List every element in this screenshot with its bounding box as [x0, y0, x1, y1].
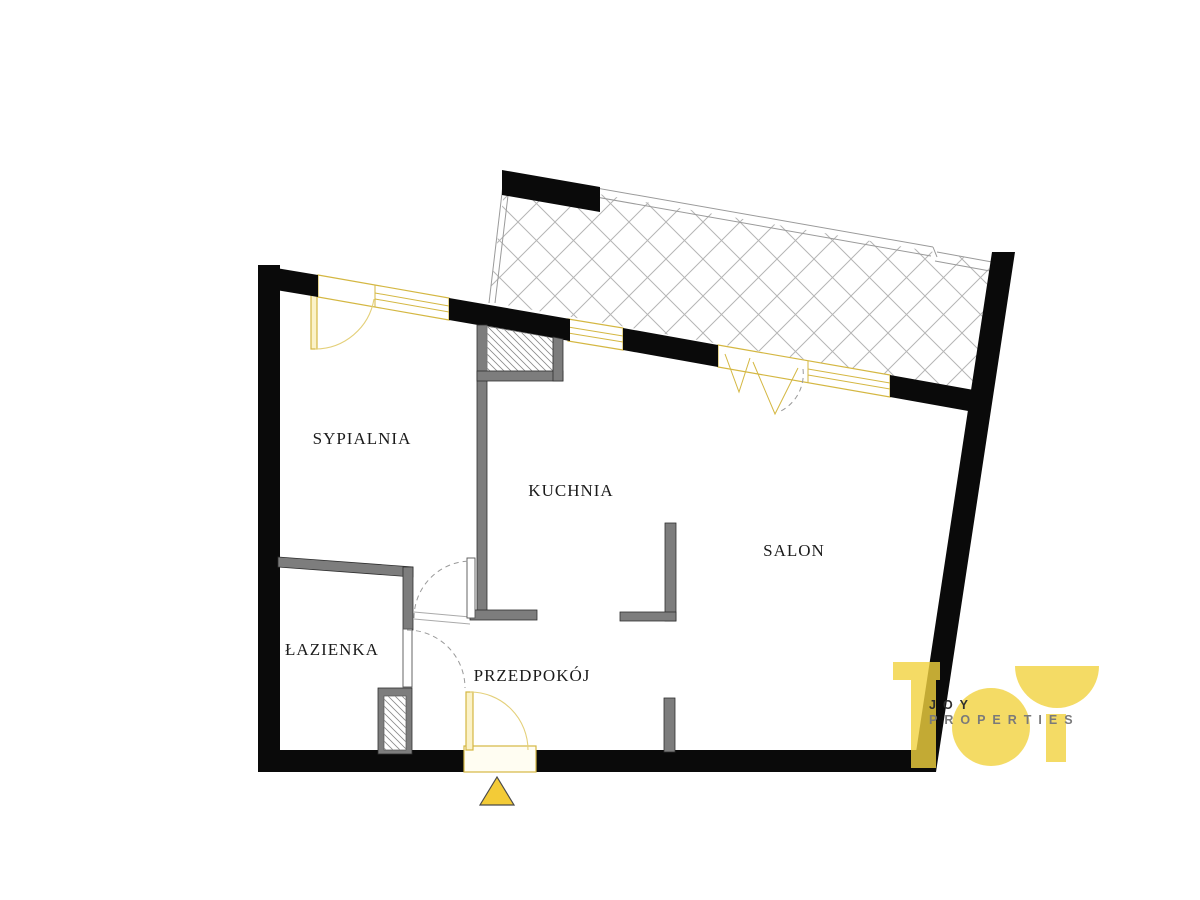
door-swing-arc: [315, 299, 374, 349]
door-leaf: [403, 629, 412, 687]
logo-joy-properties: JOY PROPERTIES: [893, 662, 1099, 768]
logo-mark-j-bar: [893, 662, 940, 680]
logo-mark-y-bowl: [1015, 666, 1099, 708]
entrance-door: [464, 692, 536, 805]
bathroom-pillar: [378, 688, 412, 754]
room-label-sypialnia: SYPIALNIA: [313, 429, 412, 448]
room-label-lazienka: ŁAZIENKA: [285, 640, 379, 659]
room-label-przedpokoj: PRZEDPOKÓJ: [474, 666, 591, 685]
room-labels: SYPIALNIA KUCHNIA SALON ŁAZIENKA PRZEDPO…: [285, 429, 825, 685]
interior-walls: [278, 325, 676, 754]
bedroom-door: [414, 558, 475, 624]
door-swing-arc: [414, 561, 471, 618]
entrance-arrow-icon: [480, 777, 514, 805]
logo-tagline: PROPERTIES: [929, 713, 1080, 727]
door-leaf: [466, 692, 473, 750]
bottom-wall: [534, 750, 920, 772]
door-leaf: [467, 558, 475, 618]
bottom-wall: [258, 750, 464, 772]
room-label-kuchnia: KUCHNIA: [528, 481, 613, 500]
interior-doors: [403, 558, 475, 688]
door-swing-arc: [407, 630, 465, 688]
balcony-door-leaf: [311, 289, 317, 349]
left-wall: [258, 265, 280, 772]
bathroom-door: [403, 629, 465, 688]
window-bedroom: [311, 275, 449, 349]
room-label-salon: SALON: [763, 541, 825, 560]
floor-plan-canvas: SYPIALNIA KUCHNIA SALON ŁAZIENKA PRZEDPO…: [0, 0, 1200, 900]
logo-text: JOY: [929, 698, 975, 712]
door-swing-arc: [470, 692, 528, 750]
floor-plan-page: SYPIALNIA KUCHNIA SALON ŁAZIENKA PRZEDPO…: [0, 0, 1200, 900]
